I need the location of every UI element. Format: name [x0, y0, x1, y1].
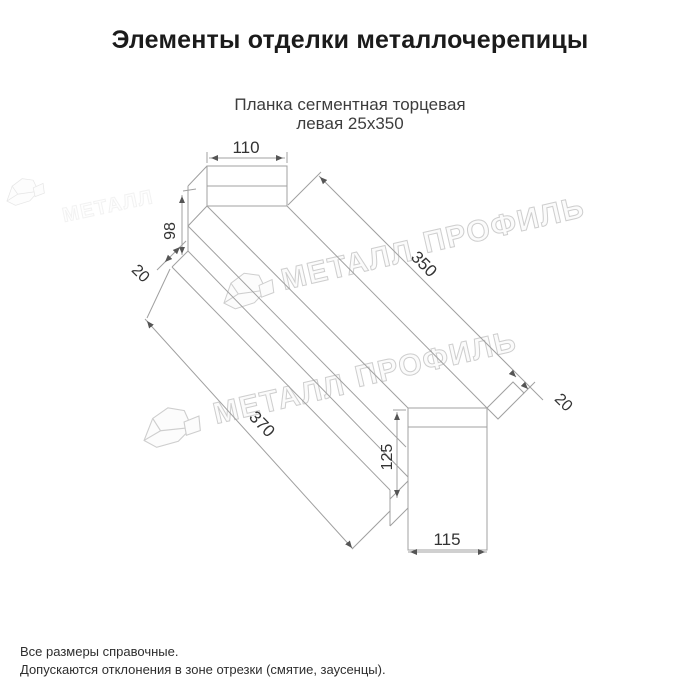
watermark-upper: МЕТАЛЛПРОФИЛЬ [219, 191, 589, 311]
watermark-lower: МЕТАЛЛПРОФИЛЬ [139, 325, 521, 450]
dim-98-line [182, 189, 196, 255]
footnote-line1: Все размеры справочные. [20, 643, 386, 661]
catalog-page: Элементы отделки металлочерепицы Планка … [0, 0, 700, 700]
dim-left-height-label: 98 [162, 222, 179, 240]
dim-20-right-ext [523, 382, 535, 394]
dim-20-left-line [157, 241, 186, 270]
bottom-end-section [408, 408, 487, 550]
brand-watermark-text: МЕТАЛЛ [60, 186, 155, 227]
dim-right-hem-label: 20 [551, 391, 576, 416]
dim-bottom-width-label: 115 [433, 530, 460, 549]
footnotes: Все размеры справочные. Допускаются откл… [20, 643, 386, 679]
footnote-line2: Допускаются отклонения в зоне отрезки (с… [20, 661, 386, 679]
dim-right-height-label: 125 [379, 444, 396, 471]
top-left-flap [188, 166, 207, 251]
dim-left-hem-label: 20 [128, 262, 153, 287]
dim-top-width-label: 110 [232, 138, 259, 157]
watermark-topleft-faint: МЕТАЛЛ [3, 175, 156, 227]
bottom-left-flap [390, 481, 408, 526]
top-left-hem [172, 251, 188, 267]
bottom-right-flap [487, 382, 524, 419]
technical-drawing: МЕТАЛЛ МЕТАЛЛПРОФИЛЬ МЕТАЛЛПРОФИЛЬ [0, 0, 700, 700]
